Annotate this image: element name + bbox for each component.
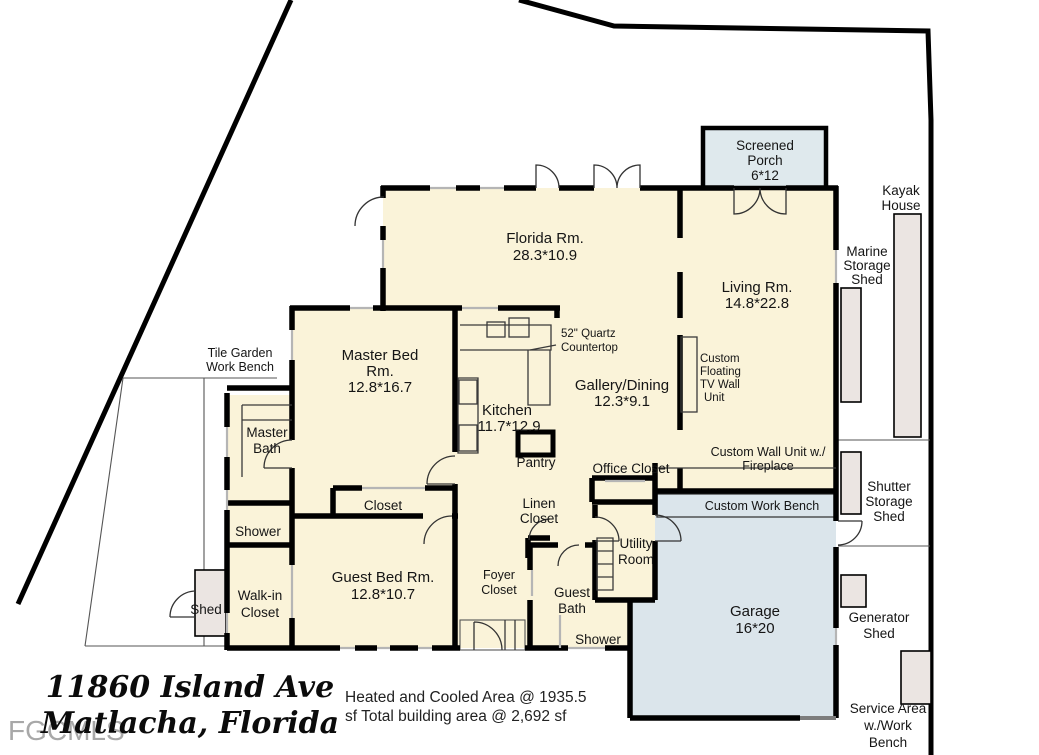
label-florida-room-2: 28.3*10.9 <box>513 247 577 264</box>
label-master-bed-2: Rm. <box>366 363 394 380</box>
label-screened-porch-3: 6*12 <box>751 168 779 183</box>
label-guest-bed-2: 12.8*10.7 <box>351 586 415 603</box>
label-walkin-closet-2: Closet <box>241 605 280 620</box>
label-fireplace-unit-1: Custom Wall Unit w./ <box>711 445 826 459</box>
label-walkin-closet-1: Walk-in <box>238 588 283 603</box>
label-kayak-house-2: House <box>881 198 920 213</box>
label-guest-bed-1: Guest Bed Rm. <box>332 569 435 586</box>
label-guest-shower: Shower <box>575 632 621 647</box>
florida-top-double-door <box>594 165 640 188</box>
label-guest-bath-2: Bath <box>558 601 586 616</box>
label-living-room-2: 14.8*22.8 <box>725 295 789 312</box>
label-foyer-closet-2: Closet <box>481 583 517 597</box>
label-marine-shed-3: Shed <box>851 272 883 287</box>
label-master-bath-1: Master <box>246 425 288 440</box>
label-guest-bath-1: Guest <box>554 585 590 600</box>
label-generator-shed-1: Generator <box>849 610 910 625</box>
label-screened-porch-2: Porch <box>747 153 782 168</box>
florida-exterior-door <box>355 197 384 226</box>
footer: FGCMLS 11860 Island Ave Matlacha, Florid… <box>8 670 587 746</box>
label-quartz-2: Countertop <box>561 342 618 354</box>
label-foyer-closet-1: Foyer <box>483 568 515 582</box>
label-linen-closet-2: Closet <box>520 511 559 526</box>
label-generator-shed-2: Shed <box>863 626 895 641</box>
label-gallery-dining-1: Gallery/Dining <box>575 377 669 394</box>
service-area-bench-structure <box>901 651 931 704</box>
generator-shed-structure <box>841 575 866 607</box>
label-tv-unit-3: TV Wall <box>700 379 740 391</box>
label-shutter-shed-2: Storage <box>865 494 912 509</box>
floor-plan-drawing: Screened Porch 6*12 Kayak House Florida … <box>0 0 1039 755</box>
label-quartz-1: 52" Quartz <box>561 328 616 340</box>
label-kitchen-2: 11.7*12.9 <box>477 418 540 435</box>
shutter-storage-shed-structure <box>841 452 861 514</box>
label-master-bath-2: Bath <box>253 441 281 456</box>
label-tv-unit-4: Unit <box>704 392 725 404</box>
label-living-room-1: Living Rm. <box>722 279 793 296</box>
label-tv-unit-1: Custom <box>700 353 740 365</box>
floor-plan-page: Screened Porch 6*12 Kayak House Florida … <box>0 0 1039 755</box>
label-master-bed-1: Master Bed <box>342 347 419 364</box>
label-service-area-2: w./Work <box>863 718 912 733</box>
label-marine-shed-2: Storage <box>843 258 890 273</box>
label-garage-2: 16*20 <box>735 620 774 637</box>
label-tv-unit-2: Floating <box>700 366 741 378</box>
label-shed: Shed <box>190 602 222 617</box>
label-master-bed-3: 12.8*16.7 <box>348 379 412 396</box>
label-kitchen-1: Kitchen <box>482 402 532 419</box>
area-note-line-2: sf Total building area @ 2,692 sf <box>345 708 567 725</box>
florida-top-single-door <box>536 165 559 188</box>
label-utility-1: Utility <box>620 536 653 551</box>
pantry-structure <box>518 432 553 455</box>
label-gallery-dining-2: 12.3*9.1 <box>594 393 650 410</box>
label-service-area-3: Bench <box>869 735 907 750</box>
area-note-line-1: Heated and Cooled Area @ 1935.5 <box>345 689 587 706</box>
label-pantry: Pantry <box>516 455 555 470</box>
label-marine-shed-1: Marine <box>846 244 887 259</box>
garage-side-door <box>838 521 862 545</box>
label-screened-porch-1: Screened <box>736 138 794 153</box>
label-fireplace-unit-2: Fireplace <box>742 459 793 473</box>
label-kayak-house-1: Kayak <box>882 183 920 198</box>
label-office-closet: Office Closet <box>592 461 669 476</box>
label-closet: Closet <box>364 498 403 513</box>
marine-storage-shed-structure <box>841 288 861 402</box>
label-utility-2: Room <box>618 552 654 567</box>
label-custom-work-bench: Custom Work Bench <box>705 499 819 513</box>
label-tile-garden-1: Tile Garden <box>208 346 273 360</box>
address-line-1: 11860 Island Ave <box>46 670 334 705</box>
label-linen-closet-1: Linen <box>522 496 555 511</box>
label-florida-room-1: Florida Rm. <box>506 230 584 247</box>
kayak-house-structure <box>894 214 921 437</box>
label-master-shower: Shower <box>235 524 281 539</box>
label-service-area-1: Service Area <box>850 701 927 716</box>
label-tile-garden-2: Work Bench <box>206 360 274 374</box>
address-line-2: Matlacha, Florida <box>40 706 339 741</box>
label-garage-1: Garage <box>730 603 780 620</box>
label-shutter-shed-1: Shutter <box>867 479 911 494</box>
label-shutter-shed-3: Shed <box>873 509 905 524</box>
